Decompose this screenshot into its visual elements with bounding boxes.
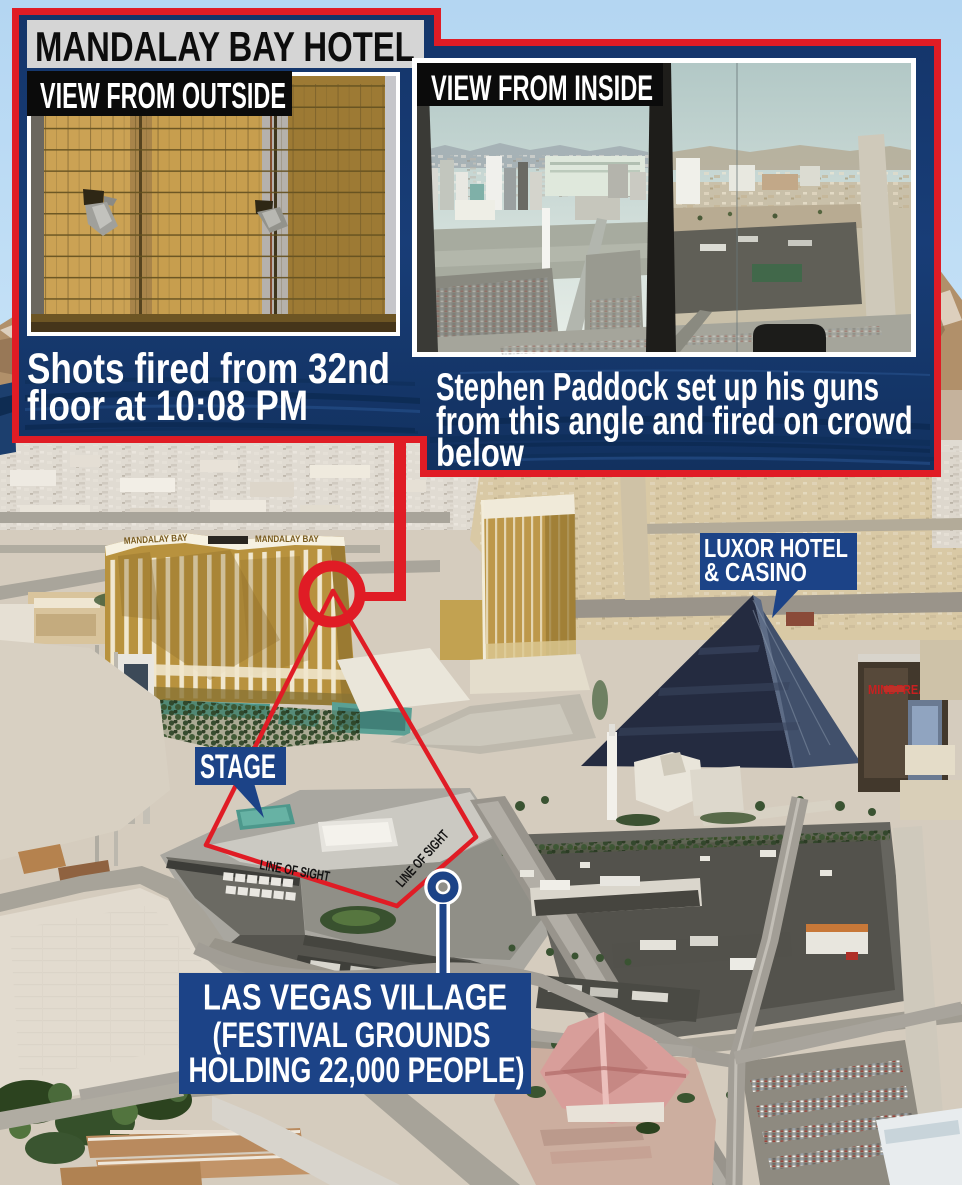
svg-text:MANDALAY BAY: MANDALAY BAY — [255, 533, 319, 544]
svg-text:VIEW FROM OUTSIDE: VIEW FROM OUTSIDE — [40, 77, 286, 116]
svg-text:& CASINO: & CASINO — [704, 559, 807, 588]
svg-text:VIEW FROM INSIDE: VIEW FROM INSIDE — [431, 70, 653, 109]
svg-text:below: below — [436, 432, 524, 475]
svg-text:MANDALAY BAY HOTEL: MANDALAY BAY HOTEL — [35, 23, 415, 70]
svg-text:HOLDING 22,000 PEOPLE): HOLDING 22,000 PEOPLE) — [189, 1050, 525, 1089]
svg-text:floor at 10:08 PM: floor at 10:08 PM — [27, 382, 308, 430]
svg-text:LAS VEGAS VILLAGE: LAS VEGAS VILLAGE — [203, 977, 507, 1018]
svg-text:STAGE: STAGE — [200, 749, 276, 787]
svg-text:(FESTIVAL GROUNDS: (FESTIVAL GROUNDS — [213, 1015, 491, 1054]
